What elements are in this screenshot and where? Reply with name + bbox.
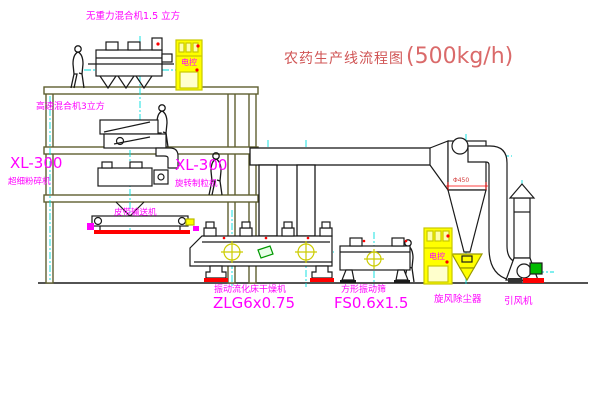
foot-pad bbox=[204, 278, 228, 282]
label-high-speed-mixer: 高速混合机3立方 bbox=[36, 103, 105, 112]
page-title: 农药生产线流程图 (500kg/h) bbox=[284, 44, 513, 69]
label-cyclone: 旋风除尘器 bbox=[434, 295, 482, 305]
flow-diagram-page: 农药生产线流程图 (500kg/h) 无重力混合机1.5 立方 高速混合机3立方… bbox=[0, 0, 600, 403]
label-mill-right-model: XL-300 bbox=[175, 158, 227, 173]
indicator-dot bbox=[223, 237, 226, 240]
magenta-fitting bbox=[87, 223, 94, 230]
fan-base bbox=[523, 278, 544, 283]
vibrating-sieve bbox=[340, 238, 410, 283]
foot-pad bbox=[310, 278, 334, 282]
indicator-dot bbox=[195, 68, 198, 71]
label-sieve-model: FS0.6x1.5 bbox=[334, 296, 408, 311]
label-mill-left-name: 超细粉碎机 bbox=[8, 178, 51, 187]
label-mill-right-name: 旋转制粒机 bbox=[175, 180, 218, 189]
label-cabinet-mark-bottom: 电控 bbox=[429, 253, 445, 261]
label-cyclone-diameter: Φ450 bbox=[453, 178, 469, 184]
collector-bin bbox=[452, 254, 482, 280]
indicator-dot bbox=[156, 42, 159, 45]
yellow-fitting bbox=[186, 219, 194, 225]
conveyor-base bbox=[94, 230, 190, 234]
magenta-fitting bbox=[193, 226, 199, 231]
fan-motor bbox=[530, 263, 542, 274]
label-cabinet-mark-top: 电控 bbox=[181, 59, 197, 67]
belt-conveyor bbox=[87, 216, 199, 234]
label-fan: 引风机 bbox=[504, 297, 533, 307]
foot-pad bbox=[340, 280, 356, 283]
indicator-dot bbox=[265, 237, 268, 240]
indicator-dot bbox=[446, 234, 449, 237]
label-gravity-mixer: 无重力混合机1.5 立方 bbox=[86, 12, 180, 22]
exhaust-duct bbox=[250, 148, 432, 236]
indicator-dot bbox=[363, 240, 366, 243]
title-capacity: (500kg/h) bbox=[406, 44, 513, 69]
label-belt-conveyor: 皮带输送机 bbox=[114, 209, 157, 218]
indicator-dot bbox=[307, 237, 310, 240]
foot-pad bbox=[394, 280, 410, 283]
label-mill-left-model: XL-300 bbox=[10, 156, 62, 171]
gravity-mixer bbox=[88, 38, 174, 88]
label-dryer-model: ZLG6x0.75 bbox=[213, 296, 295, 311]
feed-duct bbox=[259, 165, 277, 236]
title-text: 农药生产线流程图 bbox=[284, 48, 404, 68]
indicator-dot bbox=[405, 240, 408, 243]
indicator-dot bbox=[196, 44, 199, 47]
indicator-dot bbox=[445, 260, 448, 263]
